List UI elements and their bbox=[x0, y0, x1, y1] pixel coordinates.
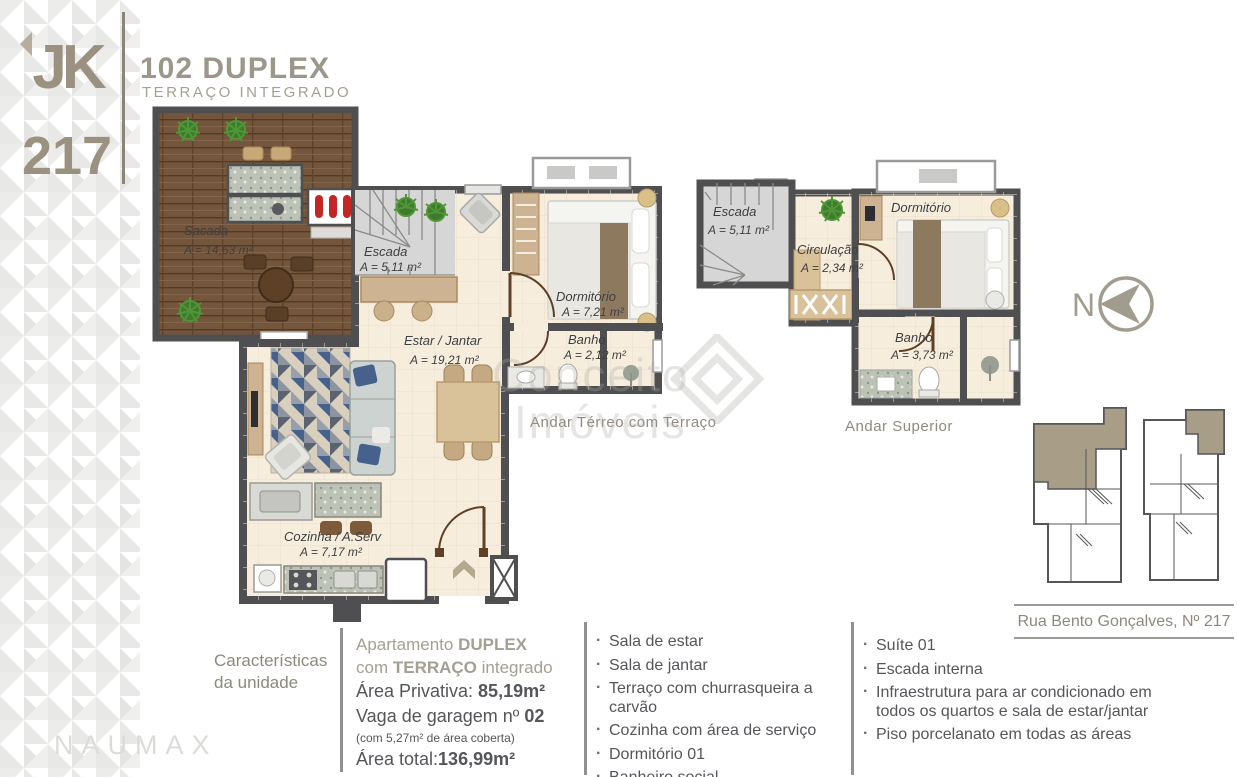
logo-number: 217 bbox=[22, 126, 112, 186]
jk217-logo: JK 217 bbox=[14, 16, 120, 188]
room-area-label: A = 14,63 m² bbox=[183, 243, 254, 257]
header-divider bbox=[122, 12, 125, 184]
feature-item: Banheiro social bbox=[596, 769, 821, 777]
north-compass: N bbox=[1062, 266, 1166, 340]
feature-item: Dormitório 01 bbox=[596, 746, 821, 765]
barbecue-grill bbox=[308, 189, 358, 238]
feature-item: Piso porcelanato em todas as áreas bbox=[863, 726, 1168, 745]
type-line2-pre: com bbox=[356, 658, 393, 677]
page-title: 102 DUPLEX bbox=[140, 52, 330, 86]
garage-note: (com 5,27m² de área coberta) bbox=[356, 730, 581, 746]
side-window bbox=[653, 340, 662, 372]
wall-stub bbox=[333, 600, 361, 622]
room-escada: Escada A = 5,11 m² bbox=[700, 183, 792, 285]
room-area-label: A = 7,17 m² bbox=[299, 545, 363, 559]
nightstand bbox=[638, 189, 656, 207]
room-label: Escada bbox=[713, 204, 756, 219]
nightstand bbox=[991, 199, 1009, 217]
tv-rack bbox=[248, 363, 263, 455]
total-area-label: Área total: bbox=[356, 749, 438, 769]
total-area-value: 136,99m² bbox=[438, 749, 515, 769]
section-title-line1: Características bbox=[214, 650, 327, 672]
room-label: Dormitório bbox=[891, 200, 951, 215]
bedroom-window bbox=[533, 158, 630, 188]
private-area-value: 85,19m² bbox=[478, 681, 545, 701]
clothes-rack bbox=[790, 290, 852, 319]
compass-label: N bbox=[1072, 287, 1095, 323]
room-area-label: A = 7,21 m² bbox=[561, 305, 625, 319]
room-label: Estar / Jantar bbox=[404, 333, 482, 348]
page-subtitle: TERRAÇO INTEGRADO bbox=[142, 84, 351, 101]
room-label: Sacada bbox=[184, 223, 228, 238]
stove bbox=[289, 570, 317, 590]
garage-value: 02 bbox=[524, 706, 544, 726]
flyer-page: JK 217 102 DUPLEX TERRAÇO INTEGRADO bbox=[0, 0, 1237, 777]
private-area-label: Área Privativa: bbox=[356, 681, 478, 701]
keyplan-address: Rua Bento Gonçalves, Nº 217 bbox=[1014, 604, 1234, 639]
garage-label: Vaga de garagem nº bbox=[356, 706, 524, 726]
section-title-line2: da unidade bbox=[214, 672, 327, 694]
features-list-left: Sala de estar Sala de jantar Terraço com… bbox=[596, 633, 821, 777]
room-label: Circulação bbox=[797, 242, 858, 257]
bedroom-window bbox=[877, 161, 995, 192]
feature-item: Suíte 01 bbox=[863, 637, 1168, 656]
feature-item: Escada interna bbox=[863, 661, 1168, 680]
upper-plan-caption: Andar Superior bbox=[845, 418, 953, 435]
divider bbox=[340, 628, 343, 772]
side-window bbox=[1010, 340, 1019, 371]
room-sacada: Sacada A = 14,63 m² bbox=[156, 110, 358, 341]
room-label: Banho bbox=[568, 332, 606, 347]
room-label: Cozinha / A.Serv bbox=[284, 529, 383, 544]
room-area-label: A = 5,11 m² bbox=[707, 223, 770, 237]
ground-floor-plan: Sacada A = 14,63 m² bbox=[148, 105, 675, 635]
type-line1-bold: DUPLEX bbox=[458, 635, 527, 654]
divider bbox=[584, 622, 587, 775]
fridge bbox=[386, 559, 426, 601]
kitchen-sink bbox=[334, 571, 355, 588]
unit-details: Apartamento DUPLEX com TERRAÇO integrado… bbox=[356, 634, 581, 773]
section-title: Características da unidade bbox=[214, 650, 327, 694]
side-table bbox=[986, 291, 1004, 309]
grill-burner bbox=[272, 203, 284, 215]
shaft-column bbox=[492, 557, 516, 599]
room-label: Escada bbox=[364, 244, 407, 259]
room-area-label: A = 5,11 m² bbox=[359, 260, 422, 274]
sofa bbox=[350, 361, 395, 475]
room-area-label: A = 3,73 m² bbox=[890, 348, 954, 362]
room-area-label: A = 2,12 m² bbox=[563, 348, 627, 362]
feature-item: Infraestrutura para ar condicionado em t… bbox=[863, 684, 1168, 721]
feature-item: Cozinha com área de serviço bbox=[596, 722, 821, 741]
type-line1-pre: Apartamento bbox=[356, 635, 458, 654]
divider bbox=[851, 622, 854, 775]
room-area-label: A = 19,21 m² bbox=[409, 353, 480, 367]
toilet bbox=[919, 367, 939, 393]
living-window bbox=[465, 185, 501, 194]
features-list-right: Suíte 01 Escada interna Infraestrutura p… bbox=[863, 637, 1168, 750]
feature-item: Sala de jantar bbox=[596, 657, 821, 676]
watermark-logo bbox=[662, 334, 772, 424]
type-line2-bold: TERRAÇO bbox=[393, 658, 477, 677]
keyplan-minimaps bbox=[1026, 394, 1236, 594]
feature-item: Sala de estar bbox=[596, 633, 821, 652]
type-line2-post: integrado bbox=[477, 658, 553, 677]
logo-triangle-accent bbox=[20, 32, 32, 56]
feature-item: Terraço com churrasqueira a carvão bbox=[596, 680, 821, 717]
room-label: Dormitório bbox=[556, 289, 616, 304]
room-label: Banho bbox=[895, 330, 933, 345]
room-area-label: A = 2,34 m² bbox=[800, 261, 864, 275]
logo-letters: JK bbox=[32, 33, 106, 102]
naumax-logo: NAUMAX bbox=[54, 730, 218, 761]
